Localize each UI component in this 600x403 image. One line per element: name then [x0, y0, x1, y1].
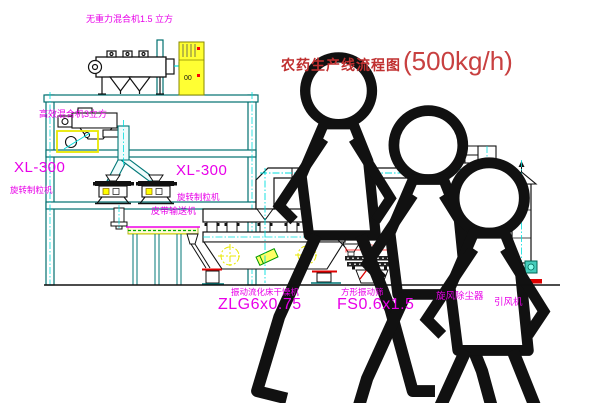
- label-granulator-right-model: XL-300: [176, 163, 227, 178]
- indicator-light: [197, 74, 200, 77]
- process-flow-diagram: 00: [0, 0, 600, 403]
- gravity-mixer-machine: [89, 51, 185, 94]
- label-granulator-left-model: XL-300: [14, 160, 65, 175]
- label-granulator-left-name: 旋转制粒机: [10, 186, 53, 195]
- label-cyclone: 旋风除尘器: [436, 292, 484, 302]
- label-dryer-model: ZLG6x0.75: [218, 297, 302, 313]
- title-text: 农药生产线流程图: [281, 55, 401, 75]
- label-fan: 引风机: [494, 298, 523, 308]
- label-sieve-model: FS0.6x1.5: [337, 297, 414, 313]
- indicator-light: [197, 47, 200, 50]
- label-gravity-mixer: 无重力混合机1.5 立方: [86, 15, 173, 24]
- cabinet-top-display: 00: [184, 75, 192, 82]
- label-granulator-right-name: 旋转制粒机: [177, 193, 220, 202]
- label-belt-conveyor: 皮带输送机: [151, 207, 196, 216]
- granulator-unit-left: [93, 175, 134, 204]
- diagram-title: 农药生产线流程图 (500kg/h): [281, 46, 513, 77]
- belt-conveyor-machine: [126, 227, 210, 285]
- title-capacity: (500kg/h): [403, 46, 513, 77]
- label-high-eff-mixer: 高效混合机3立方: [39, 110, 107, 119]
- control-cabinet-top: 00: [179, 42, 204, 95]
- granulator-unit-right: [136, 175, 177, 204]
